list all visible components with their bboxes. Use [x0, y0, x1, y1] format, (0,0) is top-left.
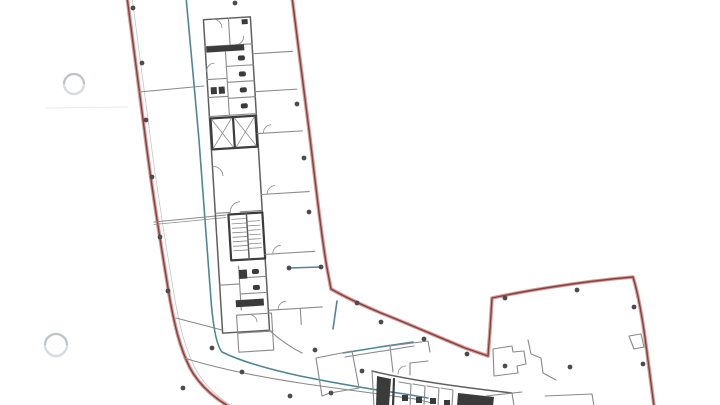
- demise-line: [186, 0, 428, 398]
- column-dot: [379, 320, 384, 325]
- door-swing-arc: [398, 366, 406, 374]
- column-dot: [355, 301, 360, 306]
- column-dot: [575, 288, 580, 293]
- staircase: [228, 212, 265, 260]
- site-boundary-right: [292, 0, 654, 405]
- wc-cubicles-lower: [219, 264, 269, 311]
- column-dot: [240, 370, 245, 375]
- service-core: [203, 14, 324, 354]
- column-dot: [210, 346, 215, 351]
- column-grid-dots: [131, 1, 646, 399]
- basin: [211, 87, 217, 94]
- column-dot: [181, 386, 186, 391]
- column-dot: [131, 6, 136, 11]
- east-rooms-partitions: [253, 50, 324, 326]
- column-dot: [233, 1, 238, 6]
- wc-fixture: [241, 103, 248, 108]
- column-dot: [166, 289, 171, 294]
- column-dot: [641, 362, 646, 367]
- wc-fixture: [253, 285, 260, 290]
- core-outline: [203, 17, 269, 333]
- door-swing-arc: [212, 165, 240, 213]
- column-dot: [329, 391, 334, 396]
- column-dot: [503, 296, 508, 301]
- column-dot: [307, 210, 312, 215]
- core-wall-dark: [457, 393, 494, 405]
- wc-fixture: [444, 400, 450, 405]
- riser-box: [239, 270, 248, 279]
- hole-punch-marks: [45, 74, 84, 356]
- demise-line-cross: [289, 267, 321, 268]
- column-dot: [287, 266, 292, 271]
- wc-cubicles-upper: [205, 50, 256, 117]
- left-wing-partitions: [139, 86, 226, 330]
- wall-notch: [629, 334, 644, 349]
- basin: [219, 87, 225, 94]
- column-dot: [465, 352, 470, 357]
- demise-line-main: [186, 0, 428, 398]
- wc-fixture: [416, 397, 422, 403]
- wc-fixture: [252, 269, 259, 274]
- wc-fixture: [238, 55, 245, 60]
- column-dot: [144, 118, 149, 123]
- column-dot: [568, 365, 573, 370]
- column-dot: [288, 394, 293, 399]
- wc-fixture: [239, 71, 246, 76]
- scan-crease: [46, 107, 128, 108]
- column-dot: [632, 305, 637, 310]
- column-dot: [150, 175, 155, 180]
- core-wall-dark: [376, 376, 391, 405]
- floor-plan-scan: [0, 0, 720, 405]
- lift-shafts: [211, 116, 258, 150]
- column-dot: [140, 61, 145, 66]
- column-dot: [302, 156, 307, 161]
- column-dot: [313, 348, 318, 353]
- wc-fixture: [430, 398, 436, 404]
- wc-fixture: [240, 87, 247, 92]
- core-wall-dark: [236, 299, 264, 308]
- column-dot: [422, 337, 427, 342]
- column-dot: [295, 102, 300, 107]
- document-page: [0, 0, 720, 405]
- column-dot: [158, 235, 163, 240]
- column-dot: [360, 369, 365, 374]
- column-dot: [503, 364, 508, 369]
- right-wing-rooms: [486, 334, 644, 405]
- wc-fixture: [402, 395, 408, 401]
- demise-line-stub: [333, 301, 337, 329]
- bend-room: [316, 351, 359, 396]
- column-dot: [319, 265, 324, 270]
